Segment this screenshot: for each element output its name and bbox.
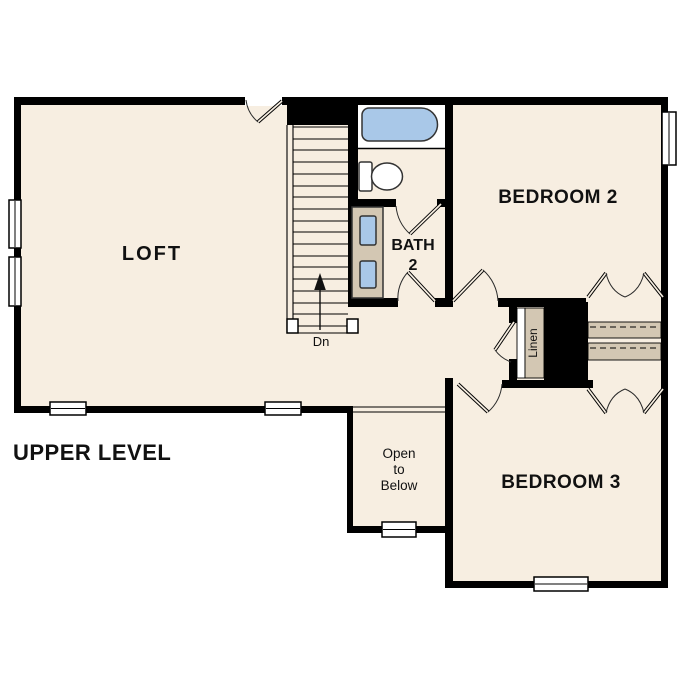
stair-newel-post — [287, 319, 298, 333]
vanity-sink-icon — [360, 216, 376, 245]
window — [50, 402, 86, 415]
window — [265, 402, 301, 415]
stair-newel-post — [347, 319, 358, 333]
wall — [435, 298, 453, 307]
wall — [509, 302, 517, 323]
room-label-loft: LOFT — [122, 243, 182, 265]
wall — [358, 199, 396, 207]
closet-shelf — [588, 322, 661, 338]
open-to-below-label: Open — [382, 446, 415, 461]
vanity-sink-icon — [360, 261, 376, 288]
room-label-bedroom2: BEDROOM 2 — [498, 187, 618, 208]
open-to-below-label: Below — [381, 478, 418, 493]
plan-title: UPPER LEVEL — [13, 440, 171, 465]
wall — [347, 406, 353, 533]
wall — [502, 380, 593, 388]
wall — [348, 298, 398, 307]
wall — [287, 97, 358, 125]
window — [662, 112, 676, 165]
room-label-bath: BATH — [391, 237, 434, 254]
window — [9, 200, 21, 248]
window — [9, 257, 21, 306]
wall — [445, 378, 453, 588]
wall — [544, 302, 588, 380]
vanity-cabinet — [352, 207, 383, 298]
closet-shelf — [588, 343, 661, 360]
linen-label: Linen — [526, 328, 540, 357]
linen-recess — [517, 308, 525, 378]
wall — [661, 97, 668, 588]
floor-plan-drawing: LOFT BEDROOM 2 BEDROOM 3 BATH 2 Dn Linen… — [0, 0, 687, 687]
wall — [14, 97, 21, 413]
room-label-bath-number: 2 — [409, 257, 418, 274]
toilet-icon — [359, 162, 403, 191]
stair-direction-label: Dn — [313, 334, 330, 349]
window — [534, 577, 588, 591]
room-label-bedroom3: BEDROOM 3 — [501, 472, 621, 493]
bathtub-icon — [362, 108, 438, 141]
open-to-below-label: to — [393, 462, 404, 477]
floor-plan-page: LOFT BEDROOM 2 BEDROOM 3 BATH 2 Dn Linen… — [0, 0, 687, 687]
window — [382, 522, 416, 537]
